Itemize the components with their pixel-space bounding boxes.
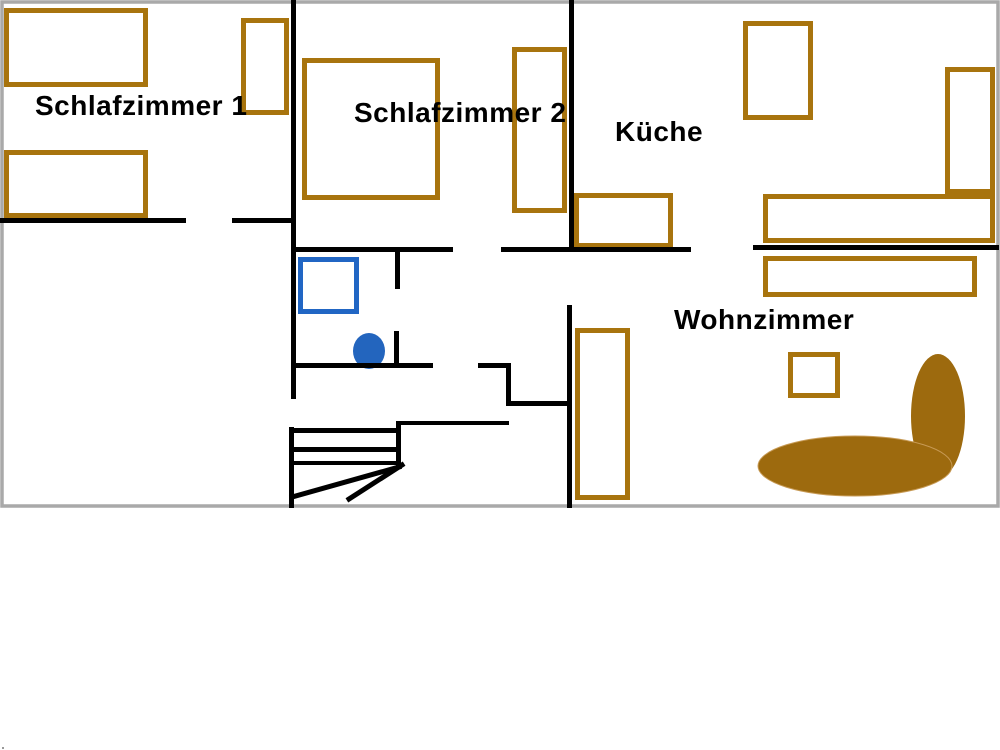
stray-mark xyxy=(2,747,4,749)
kueche-furniture-fridge xyxy=(948,70,993,192)
floor-plan-page: Schlafzimmer 1 Schlafzimmer 2 Küche Wohn… xyxy=(0,0,1000,750)
wall-segment xyxy=(232,218,295,223)
schlafzimmer1-furniture-bed xyxy=(7,11,146,85)
kueche-furniture-table xyxy=(746,24,811,118)
bathroom-fixtures-group xyxy=(301,260,386,370)
schlafzimmer2-furniture-bed xyxy=(305,61,438,198)
wall-segment xyxy=(506,401,572,406)
room-label-schlafzimmer2: Schlafzimmer 2 xyxy=(354,99,566,127)
sofa-seat-ellipse xyxy=(758,436,952,496)
room-label-schlafzimmer1: Schlafzimmer 1 xyxy=(35,92,247,120)
staircase xyxy=(289,421,402,508)
floor-plan-drawing xyxy=(0,0,1000,512)
wohnzimmer-furniture-sideboard xyxy=(766,259,975,295)
schlafzimmer2-furniture-wardrobe xyxy=(515,50,565,211)
wohnzimmer-furniture-cabinet xyxy=(578,331,628,498)
room-label-kueche: Küche xyxy=(615,118,703,146)
shower-fixture xyxy=(301,260,357,312)
stairs-tread xyxy=(292,461,397,465)
room-label-wohnzimmer: Wohnzimmer xyxy=(674,306,854,334)
wall-segment xyxy=(291,0,296,399)
schlafzimmer1-furniture-dresser xyxy=(7,153,146,216)
stairs-tread xyxy=(292,447,398,452)
kueche-furniture-counter xyxy=(577,196,671,246)
walls-group xyxy=(0,0,999,508)
wall-segment xyxy=(293,363,433,368)
wall-segment xyxy=(501,247,691,252)
stairs-diagonal-line xyxy=(292,467,399,497)
wall-segment xyxy=(569,0,574,250)
kueche-furniture-counter-long xyxy=(766,197,993,241)
wall-segment xyxy=(753,245,999,250)
wall-segment xyxy=(506,363,511,406)
stairs-side-right xyxy=(396,421,401,468)
wohnzimmer-furniture-side-table xyxy=(791,355,838,396)
wall-segment xyxy=(0,218,186,223)
schlafzimmer1-furniture-wardrobe xyxy=(244,21,287,113)
stairs-diagonal-line xyxy=(349,465,402,499)
plan-border xyxy=(2,2,998,506)
wall-segment xyxy=(395,252,400,289)
stairs-top-edge xyxy=(291,428,399,433)
wall-segment xyxy=(394,331,399,367)
wall-segment xyxy=(291,247,453,252)
wall-segment xyxy=(567,305,572,508)
wall-segment xyxy=(397,421,509,425)
